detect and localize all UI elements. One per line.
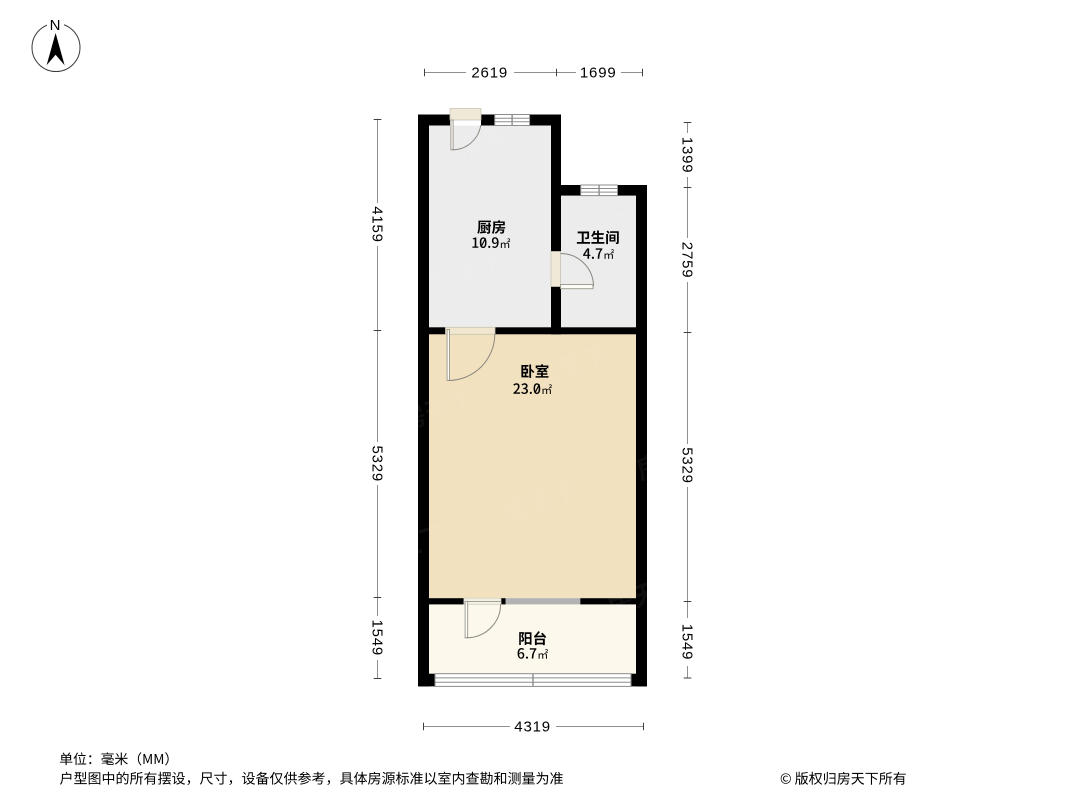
svg-text:1699: 1699 <box>580 65 617 82</box>
svg-text:5329: 5329 <box>369 446 386 483</box>
svg-text:1399: 1399 <box>679 137 696 174</box>
svg-text:5329: 5329 <box>679 447 696 484</box>
svg-text:4159: 4159 <box>369 206 386 243</box>
svg-text:2759: 2759 <box>679 242 696 279</box>
svg-text:1549: 1549 <box>369 620 386 657</box>
svg-text:N: N <box>50 17 62 34</box>
svg-text:4319: 4319 <box>514 719 551 736</box>
svg-text:1549: 1549 <box>679 624 696 661</box>
svg-text:2619: 2619 <box>471 65 508 82</box>
